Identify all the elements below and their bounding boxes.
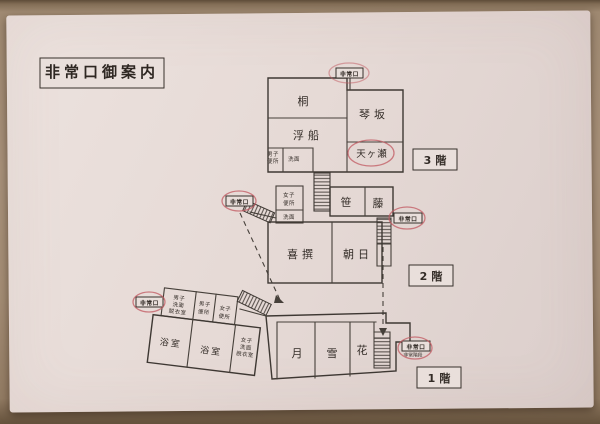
- stairs-2f-right: [377, 218, 391, 244]
- stairs-3f-2f: [314, 173, 330, 211]
- room-label-asahi: 朝日: [343, 248, 373, 261]
- room-label-amagase: 天ヶ瀬: [356, 148, 388, 160]
- room-label-kotosaka: 琴坂: [359, 108, 389, 121]
- floor-1-plan: 男子 洗面 脱衣室 男子 便所 女子 便所 浴室 浴室 女子 洗面 脱衣室 月 …: [133, 287, 461, 388]
- f2-exit-left-label: 非常口: [230, 198, 249, 206]
- room-label-sasa: 笹: [341, 196, 352, 209]
- f2-badge: 2階: [420, 269, 447, 283]
- room-label-bath2: 浴室: [199, 344, 222, 359]
- f2-right-shaft: [377, 244, 391, 266]
- room-label-kiri: 桐: [298, 94, 309, 108]
- f2-washbasin-label: 洗面: [283, 213, 295, 221]
- room-label-yuki: 雪: [327, 347, 338, 360]
- title-box: 非常口御案内: [40, 58, 164, 88]
- f2-womens-toilet-line2: 便所: [283, 199, 295, 207]
- evacuation-map: 非常口御案内 桐 浮船 琴坂 天ヶ瀬 男子 便所 洗面 非常口 3階: [0, 0, 600, 424]
- room-label-kisen: 喜撰: [287, 247, 317, 261]
- f1-badge: 1階: [428, 371, 455, 385]
- room-label-tsuki: 月: [292, 347, 303, 360]
- room-label-ukifune: 浮船: [293, 128, 323, 142]
- room-label-fuji: 藤: [373, 197, 384, 210]
- f3-badge: 3階: [424, 153, 451, 167]
- page-title: 非常口御案内: [45, 63, 159, 81]
- f3-washbasin-label: 洗面: [288, 155, 300, 163]
- f2-exit-right-label: 非常口: [399, 215, 418, 223]
- route-arrow-left: [274, 295, 284, 303]
- f1-womens-toilet-line1: 女子: [219, 304, 232, 313]
- stairs-1f-right: [374, 338, 390, 368]
- f1-mens-toilet-line1: 男子: [198, 300, 211, 308]
- f3-mens-toilet-line1: 男子: [267, 151, 279, 158]
- f1-exit-right-label: 非常口: [407, 343, 426, 351]
- f2-womens-toilet-line1: 女子: [283, 191, 295, 199]
- f1-mens-toilet-line2: 便所: [198, 307, 211, 316]
- f3-mens-toilet-line2: 便所: [267, 157, 279, 165]
- floor-2-plan: 女子 便所 洗面 笹 藤 喜撰 朝日 非常口 非常口 2階: [222, 186, 453, 286]
- f2-top-row: [330, 187, 393, 216]
- f1-bath-dividers: [187, 320, 236, 373]
- room-label-hana: 花: [357, 344, 368, 357]
- floor-3-plan: 桐 浮船 琴坂 天ヶ瀬 男子 便所 洗面 非常口 3階: [267, 63, 457, 172]
- f3-exit-label: 非常口: [340, 70, 359, 78]
- f1-womens-toilet-line2: 便所: [218, 312, 231, 321]
- route-dashed-left: [240, 213, 280, 300]
- f1-exit-left-label: 非常口: [140, 299, 159, 307]
- stairs-1f-middle: [237, 290, 271, 315]
- f1-mens-change-line1: 男子: [173, 294, 186, 302]
- f1-womens-change-line1: 女子: [240, 336, 253, 345]
- room-label-bath1: 浴室: [159, 336, 182, 351]
